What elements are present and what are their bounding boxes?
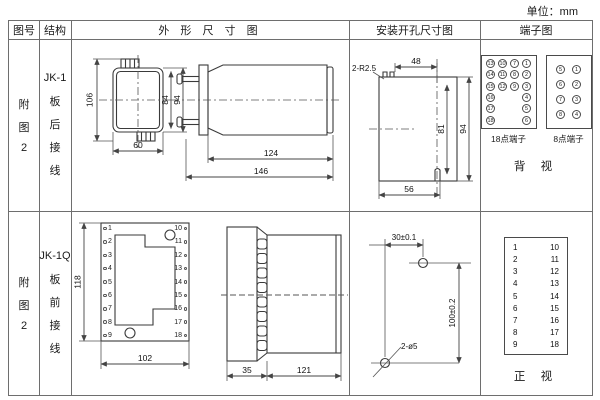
row1-terminal-cell: 131071141182151293164175186 18点端子 516273… bbox=[480, 39, 592, 211]
terminal-dot bbox=[184, 267, 188, 271]
terminal-pin: 6 bbox=[522, 116, 531, 125]
dim-121: 121 bbox=[297, 365, 311, 375]
terminal-dot bbox=[103, 294, 107, 298]
terminal-dot bbox=[184, 294, 188, 298]
dim-118: 118 bbox=[73, 275, 83, 289]
terminal-dot bbox=[103, 240, 107, 244]
front-block-right-numbers: 101112131415161718 bbox=[550, 243, 559, 349]
jk1-front-view: 106 84 94 60 bbox=[85, 55, 188, 155]
terminal-pin: 5 bbox=[556, 65, 565, 74]
terminal-pin: 10 bbox=[498, 59, 507, 68]
note-2-phi5: 2-ø5 bbox=[401, 342, 418, 351]
front-view-label: 正 视 bbox=[514, 368, 558, 384]
front-left-terminal-numbers: 123456789 bbox=[103, 225, 112, 339]
dim-84: 84 bbox=[160, 95, 170, 105]
datasheet-page: 单位：mm 图号 结构 外 形 尺 寸 图 安装开孔尺寸图 端子图 附图2 JK… bbox=[0, 0, 600, 400]
front-right-terminal-numbers: 101112131415161718 bbox=[165, 225, 187, 339]
terminal-dot bbox=[184, 280, 188, 284]
header-fig-no: 图号 bbox=[9, 21, 39, 39]
terminal-pin: 12 bbox=[498, 82, 507, 91]
terminal-pin: 6 bbox=[556, 80, 565, 89]
label-8-point: 8点端子 bbox=[546, 133, 592, 145]
dim-94-cutout: 94 bbox=[458, 124, 468, 134]
terminal-block-front: 123456789 101112131415161718 bbox=[504, 237, 568, 355]
terminal-dot bbox=[103, 267, 107, 271]
terminal-pin: 13 bbox=[486, 59, 495, 68]
dim-35: 35 bbox=[242, 365, 252, 375]
row1-model: JK-1 bbox=[44, 72, 67, 84]
rear-view-label: 背 视 bbox=[514, 158, 558, 174]
terminal-pin: 16 bbox=[486, 93, 495, 102]
row2-outline-cell: 118 102 123456789 101112131415161718 bbox=[71, 211, 349, 395]
terminal-block-18: 131071141182151293164175186 bbox=[481, 55, 537, 129]
terminal-dot bbox=[103, 307, 107, 311]
terminal-dot bbox=[184, 307, 188, 311]
dim-102: 102 bbox=[138, 353, 152, 363]
row1-wiring: 板后接线 bbox=[50, 93, 61, 178]
terminal-dot bbox=[184, 227, 188, 231]
row2-mounting-cell: 30±0.1 100±0.2 2-ø5 bbox=[349, 211, 480, 395]
dim-146: 146 bbox=[254, 166, 268, 176]
row2-terminal-cell: 123456789 101112131415161718 正 视 bbox=[480, 211, 592, 395]
terminal-pin: 11 bbox=[498, 70, 507, 79]
row2-wiring: 板前接线 bbox=[50, 271, 61, 356]
terminal-dot bbox=[184, 320, 188, 324]
terminal-pin: 5 bbox=[522, 104, 531, 113]
dim-81: 81 bbox=[436, 124, 446, 134]
terminal-pin: 14 bbox=[486, 70, 495, 79]
dim-30: 30±0.1 bbox=[392, 233, 417, 242]
terminal-pin: 3 bbox=[522, 82, 531, 91]
row2-structure-label: JK-1Q 板前接线 bbox=[39, 211, 71, 395]
row1-fig-label: 附图2 bbox=[9, 39, 39, 211]
terminal-pin: 18 bbox=[486, 116, 495, 125]
terminal-pin: 2 bbox=[522, 70, 531, 79]
terminal-pin: 1 bbox=[572, 65, 581, 74]
jk1-side-view: 124 146 bbox=[171, 65, 341, 181]
terminal-dot bbox=[184, 240, 188, 244]
row2-model: JK-1Q bbox=[39, 250, 70, 262]
dim-106: 106 bbox=[85, 93, 95, 107]
terminal-dot bbox=[184, 334, 188, 338]
terminal-dot bbox=[103, 227, 107, 231]
terminal-pin: 7 bbox=[556, 95, 565, 104]
terminal-dot bbox=[184, 254, 188, 258]
row1-mounting-cell: 2-R2.5 48 81 94 56 bbox=[349, 39, 480, 211]
jk1q-side-view: 35 121 bbox=[221, 211, 349, 395]
terminal-pin: 8 bbox=[556, 110, 565, 119]
terminal-dot bbox=[103, 280, 107, 284]
unit-label: 单位：mm bbox=[527, 3, 578, 19]
terminal-dot bbox=[103, 254, 107, 258]
dim-56: 56 bbox=[404, 184, 414, 194]
jk1-mounting-drawing: 2-R2.5 48 81 94 56 bbox=[349, 39, 480, 211]
terminal-pin: 7 bbox=[510, 59, 519, 68]
jk1q-front-view: 118 102 123456789 101112131415161718 bbox=[71, 211, 221, 395]
terminal-dot bbox=[103, 334, 107, 338]
note-2-R2.5: 2-R2.5 bbox=[352, 64, 377, 73]
dim-124: 124 bbox=[264, 148, 278, 158]
terminal-block-8: 51627384 bbox=[546, 55, 592, 129]
label-18-point: 18点端子 bbox=[481, 133, 537, 145]
dimension-table: 图号 结构 外 形 尺 寸 图 安装开孔尺寸图 端子图 附图2 JK-1 板后接… bbox=[8, 20, 593, 396]
dim-100: 100±0.2 bbox=[448, 298, 457, 327]
terminal-pin: 17 bbox=[486, 104, 495, 113]
terminal-pin: 4 bbox=[572, 110, 581, 119]
terminal-pin: 15 bbox=[486, 82, 495, 91]
terminal-pin: 9 bbox=[510, 82, 519, 91]
terminal-pin: 3 bbox=[572, 95, 581, 104]
row1-structure-label: JK-1 板后接线 bbox=[39, 39, 71, 211]
jk1-outline-drawing: 106 84 94 60 bbox=[71, 39, 349, 211]
front-block-left-numbers: 123456789 bbox=[513, 243, 517, 349]
header-terminal-diagram: 端子图 bbox=[480, 21, 592, 39]
row2-fig-label: 附图2 bbox=[9, 211, 39, 395]
dim-48: 48 bbox=[411, 56, 421, 66]
terminal-pin: 8 bbox=[510, 70, 519, 79]
terminal-pin: 1 bbox=[522, 59, 531, 68]
terminal-dot bbox=[103, 320, 107, 324]
row1-outline-cell: 106 84 94 60 bbox=[71, 39, 349, 211]
terminal-pin: 2 bbox=[572, 80, 581, 89]
header-mounting-dims: 安装开孔尺寸图 bbox=[349, 21, 480, 39]
header-structure: 结构 bbox=[39, 21, 71, 39]
header-outline-dims: 外 形 尺 寸 图 bbox=[71, 21, 349, 39]
jk1q-mounting-drawing: 30±0.1 100±0.2 2-ø5 bbox=[349, 211, 480, 395]
terminal-pin: 4 bbox=[522, 93, 531, 102]
dim-60: 60 bbox=[133, 140, 143, 150]
